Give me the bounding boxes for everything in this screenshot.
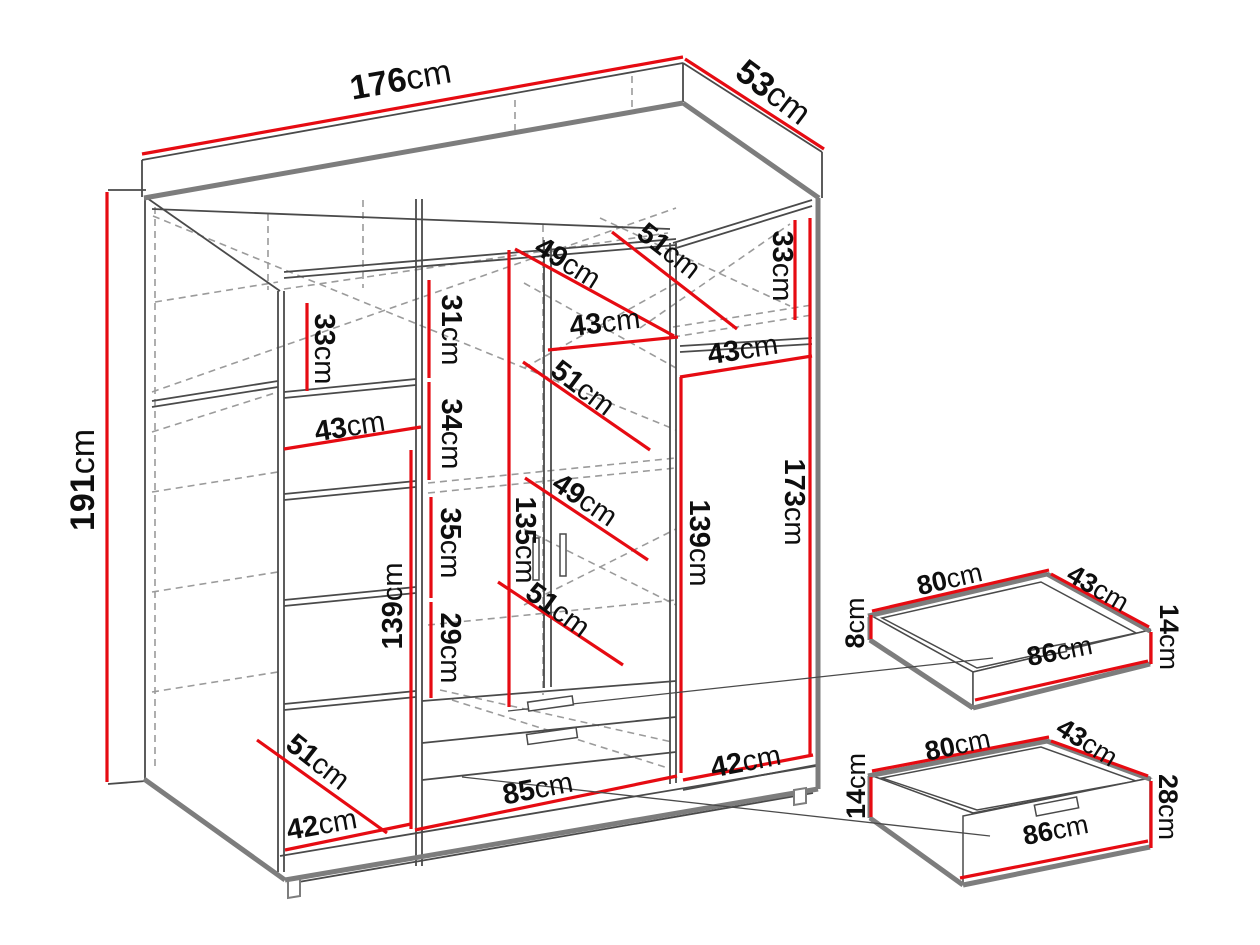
wardrobe-main-view-dim-label-29cm: 29cm xyxy=(434,613,466,684)
wardrobe-main-view-hidden-edge xyxy=(673,305,812,327)
diagram-page: 176cm53cm191cm33cm43cm31cm34cm35cm29cm13… xyxy=(0,0,1260,945)
wardrobe-main-view-edge xyxy=(284,239,676,272)
wardrobe-main-view-edge xyxy=(152,209,670,229)
wardrobe-main-view-edge xyxy=(284,487,416,500)
wardrobe-main-view-handle-icon xyxy=(528,696,574,711)
wardrobe-main-view-edge xyxy=(284,245,676,278)
wardrobe-main-view-edge xyxy=(108,781,146,784)
drawer-detail-deep-dim-label-14cm: 14cm xyxy=(841,753,871,819)
wardrobe-main-view-edge xyxy=(422,681,676,701)
wardrobe-main-view-dim-label-85cm: 85cm xyxy=(500,766,576,811)
wardrobe-main-view-dim-label-43cm: 43cm xyxy=(312,405,387,448)
wardrobe-main-view-hidden-edge xyxy=(152,472,278,492)
wardrobe-main-view-dim-label-33cm: 33cm xyxy=(308,314,340,385)
wardrobe-main-view-dim-label-43cm: 43cm xyxy=(705,328,780,371)
wardrobe-main-view-edge xyxy=(284,691,416,704)
wardrobe-main-view-dim-label-51cm: 51cm xyxy=(520,576,596,644)
wardrobe-main-view-dim-label-31cm: 31cm xyxy=(435,295,467,366)
wardrobe-main-view-edge xyxy=(152,387,278,407)
wardrobe-main-view-foot xyxy=(794,788,806,805)
wardrobe-main-view-outer-edge xyxy=(144,779,285,880)
wardrobe-main-view-dim-label-139cm: 139cm xyxy=(377,562,409,649)
wardrobe-main-view-dim-label-33cm: 33cm xyxy=(766,231,798,302)
wardrobe-main-view-hidden-edge xyxy=(152,572,278,592)
wardrobe-main-view-hidden-edge xyxy=(152,672,278,692)
wardrobe-main-view-edge xyxy=(287,793,813,884)
wardrobe-main-view-dim-label-49cm: 49cm xyxy=(529,230,606,295)
wardrobe-main-view-edge xyxy=(284,481,416,494)
wardrobe-main-view-dim-label-42cm: 42cm xyxy=(284,803,359,847)
wardrobe-main-view-foot xyxy=(288,879,300,898)
wardrobe-main-view-edge xyxy=(284,379,416,392)
wardrobe-main-view-edge xyxy=(284,385,416,398)
wardrobe-main-view-dim-label-51cm: 51cm xyxy=(545,354,621,422)
drawer-detail-shallow-dim-label-8cm: 8cm xyxy=(840,597,870,648)
wardrobe-main-view-dim-label-42cm: 42cm xyxy=(708,739,784,784)
wardrobe-main-view-dim-label-51cm: 51cm xyxy=(280,727,356,796)
wardrobe-main-view-dim-label-35cm: 35cm xyxy=(434,508,466,579)
wardrobe-main-view-handle-icon xyxy=(560,534,566,576)
wardrobe-main-view-dim-label-43cm: 43cm xyxy=(568,302,642,342)
wardrobe-main-view-dim-label-173cm: 173cm xyxy=(778,458,810,545)
wardrobe-main-view-hidden-edge xyxy=(155,282,278,302)
drawer-detail-deep-dim-label-28cm: 28cm xyxy=(1153,774,1183,840)
wardrobe-main-view-hidden-edge xyxy=(152,208,676,392)
wardrobe-main-view-edge xyxy=(284,697,416,710)
drawer-detail-shallow-dim-label-14cm: 14cm xyxy=(1154,604,1184,670)
wardrobe-main-view-dim-label-191cm: 191cm xyxy=(64,429,102,531)
wardrobe-main-view-dim-label-34cm: 34cm xyxy=(435,399,467,470)
detail-pointer-line xyxy=(508,658,993,711)
wardrobe-main-view-dim-label-139cm: 139cm xyxy=(683,499,715,586)
wardrobe-main-view-dim-label-135cm: 135cm xyxy=(509,496,541,583)
wardrobe-dimension-diagram: 176cm53cm191cm33cm43cm31cm34cm35cm29cm13… xyxy=(0,0,1260,945)
wardrobe-main-view-outer-edge xyxy=(144,103,683,198)
